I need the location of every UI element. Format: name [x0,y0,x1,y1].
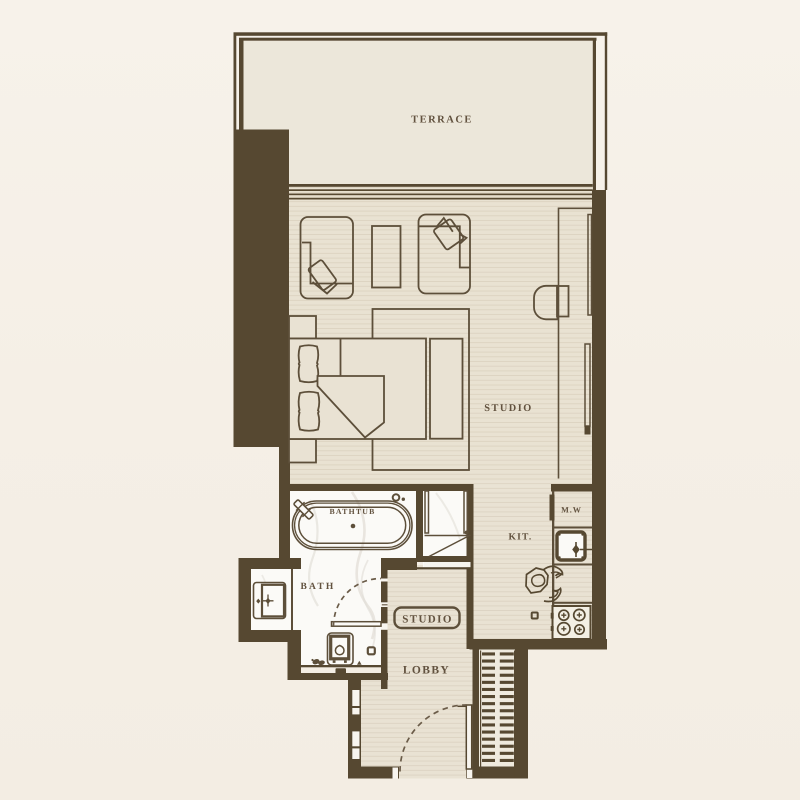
svg-text:M.W: M.W [561,506,582,515]
svg-text:LOBBY: LOBBY [403,665,450,677]
svg-text:BATHTUB: BATHTUB [330,507,376,516]
svg-text:STUDIO: STUDIO [484,403,532,414]
svg-text:BATH: BATH [300,582,335,592]
svg-text:STUDIO: STUDIO [402,614,453,626]
svg-text:KIT.: KIT. [509,533,533,543]
svg-text:TERRACE: TERRACE [411,115,473,126]
